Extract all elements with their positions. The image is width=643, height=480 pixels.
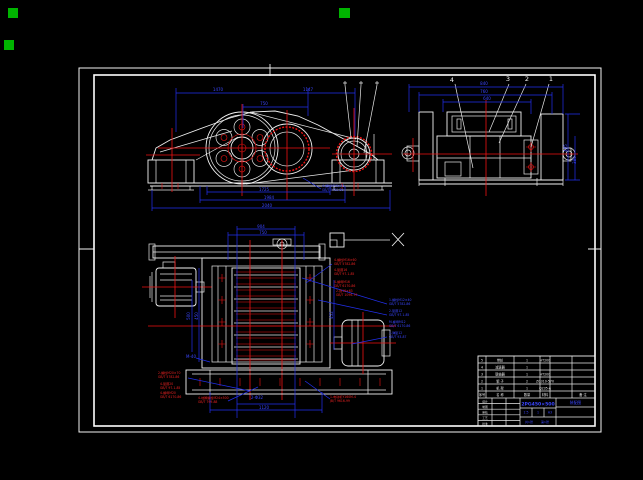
dimension-labels: 1470114775017251984204084076064049538090…	[186, 81, 577, 410]
balloon-number: 3	[506, 75, 510, 83]
dimension-label: 450	[194, 312, 199, 320]
drawing-type: 装配图	[570, 400, 582, 405]
dimension-label: 452	[329, 311, 334, 319]
dimension-label: 1120	[259, 405, 270, 410]
side-view	[402, 84, 580, 196]
balloon-number: 2	[525, 75, 529, 83]
dimension-label: M-40	[186, 354, 196, 359]
dimension-label: 750	[259, 230, 267, 235]
annotation-note: JB/T 9616-99	[329, 399, 350, 403]
bom-cell: 4	[481, 366, 483, 370]
balloon-number: 1	[549, 75, 553, 83]
annotation-note: GB/T 97.1-85	[334, 272, 354, 276]
bom-cell: ZG310-570	[536, 380, 554, 384]
annotation-note: GB/T 799-88	[198, 400, 217, 404]
annotation-note: GB/T 97.1-85	[160, 386, 180, 390]
sheet-count: 共1张	[525, 419, 533, 424]
annotation-note: GB/T 1096-79	[336, 293, 357, 297]
bom-cell: 机 架	[496, 386, 504, 391]
dimension-label: 1725	[259, 187, 270, 192]
bom-cell: HT200	[540, 373, 550, 377]
scale-value: 1:5	[523, 411, 528, 415]
sheet-number: 第1张	[541, 419, 549, 424]
annotation-note: GB/T 5782-86	[158, 375, 179, 379]
qty-value: 1	[537, 411, 539, 415]
dimension-label: 750	[260, 101, 268, 106]
dimension-label: 380	[572, 156, 577, 164]
bom-cell: HT200	[540, 359, 550, 363]
annotation-note: GB/T 5782-86	[334, 262, 355, 266]
bom-cell: 1	[526, 387, 528, 391]
balloon-number: 4	[450, 76, 454, 84]
bom-cell: 3	[481, 373, 483, 377]
cad-drawing-canvas: 2PG450×500 装配图 1:5 1 A3 共1张 第1张 设计制图审核工艺…	[0, 0, 643, 480]
dimension-label: 1470	[213, 87, 224, 92]
bom-cell: 辊 子	[496, 379, 504, 384]
annotation-note: GB/T 5782-86	[322, 188, 343, 192]
dimension-label: 500	[186, 312, 191, 320]
bom-cell: Q235-A	[539, 387, 552, 391]
dimension-label: 760	[480, 89, 488, 94]
bom-cell: 1	[481, 387, 483, 391]
dimension-label: 1984	[264, 195, 275, 200]
dimension-label: 2-Φ32	[251, 395, 264, 400]
signature-label: 设计	[482, 399, 488, 403]
annotation-note: GB/T 5782-86	[389, 302, 410, 306]
annotation-note: GB/T 6170-86	[160, 395, 181, 399]
cad-viewport[interactable]: 2PG450×500 装配图 1:5 1 A3 共1张 第1张 设计制图审核工艺…	[0, 0, 643, 480]
plan-view	[142, 226, 404, 418]
bom-cell: 联轴器	[495, 372, 505, 377]
bom-header: 材料	[542, 392, 549, 397]
dimension-label: 840	[480, 81, 488, 86]
bom-header: 名 称	[496, 392, 504, 397]
annotation-note: GB/T 93-87	[389, 335, 406, 339]
signature-label: 批准	[482, 422, 488, 426]
annotation-note: GB/T 6170-86	[389, 324, 410, 328]
bom-cell: 1	[526, 366, 528, 370]
annotation-note: GB/T 97.1-85	[389, 313, 409, 317]
grip-handle[interactable]	[4, 40, 14, 50]
drawing-title: 2PG450×500	[521, 402, 554, 408]
bom-cell: 2	[481, 380, 483, 384]
grip-handle[interactable]	[8, 8, 18, 18]
bom-cell: 2	[526, 380, 528, 384]
signature-labels: 设计制图审核工艺批准	[482, 399, 488, 425]
paper-size: A3	[548, 411, 552, 415]
bom-header: 备 注	[579, 392, 587, 397]
selection-grips	[4, 8, 350, 50]
bom-cell: 1	[526, 373, 528, 377]
dimension-label: 904	[257, 224, 265, 229]
item-balloons: 4321	[450, 75, 553, 84]
bom-cell: 减速器	[495, 365, 505, 370]
bom-cell: 1	[526, 359, 528, 363]
annotation-note: GB/T 6170-86	[334, 284, 355, 288]
signature-label: 制图	[482, 405, 488, 409]
title-block: 2PG450×500 装配图 1:5 1 A3 共1张 第1张 设计制图审核工艺…	[478, 356, 595, 426]
dimension-label: 495	[563, 144, 568, 152]
bom-cell: 5	[481, 359, 483, 363]
grip-handle[interactable]	[339, 8, 350, 18]
signature-label: 审核	[482, 411, 488, 415]
bom-cell: 带轮	[497, 358, 504, 363]
bom-header: 数量	[524, 392, 531, 397]
dimension-label: 1147	[303, 87, 314, 92]
signature-label: 工艺	[482, 416, 488, 420]
dimension-label: 2040	[262, 203, 273, 208]
dimension-label: 640	[483, 96, 491, 101]
bom-header: 序号	[479, 392, 485, 397]
